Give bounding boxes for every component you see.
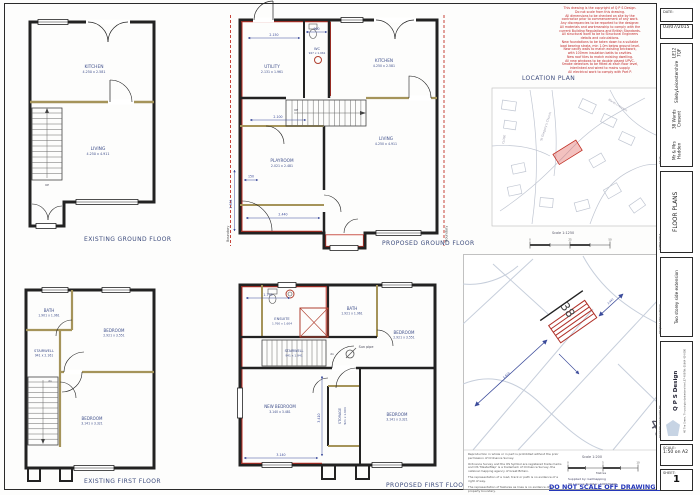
- client-line: Mr & Mrs Hadden: [671, 135, 682, 166]
- stair-direction-label: dn: [48, 379, 52, 383]
- location-plan-map: St Gregory's Church Wards Crescent CLOSE: [490, 86, 660, 228]
- door-arcs: [313, 330, 393, 393]
- producer-address: 40 The Green, ThrussingtonLeicestershire…: [679, 342, 691, 440]
- room-dims: 2.921 x 3.551: [393, 336, 415, 340]
- disclaimer-paragraph: Reproduction in whole or in part is proh…: [468, 453, 562, 460]
- room-dims: 947 x 1.961: [309, 51, 326, 55]
- room-label: NEW BEDROOM: [264, 404, 296, 409]
- sheet-title-box-label: SHEET TITLE: [659, 234, 662, 250]
- scale-tick: 0: [529, 238, 531, 242]
- sheet-number-box: SHEET: 1: [660, 469, 693, 491]
- room-label: KITCHEN: [375, 58, 393, 63]
- window-symbols: [330, 18, 421, 251]
- date-label-box: DATE:: [660, 8, 693, 22]
- porch-doors: [32, 204, 62, 220]
- sheet-number: 1: [661, 475, 692, 485]
- location-scale-label: Scale 1:1250: [552, 231, 574, 235]
- french-door: [86, 20, 130, 42]
- room-dims: 2.131 x 1.961: [261, 70, 283, 74]
- client-address: Mr & Mrs Hadden38 Wards CresentSilebyLei…: [661, 44, 692, 166]
- window-symbols: [238, 283, 413, 468]
- dim-text: 3.410: [317, 413, 321, 422]
- room-dims: 3.140 x 3.481: [269, 410, 291, 414]
- new-wall-red-lines: [241, 22, 363, 247]
- existing-first-floor-plan: BATH 1.901 x 1.961 BEDROOM 2.921 x 3.551…: [14, 282, 174, 490]
- room-dims: 3.141 x 3.321: [81, 422, 103, 426]
- caption-existing-ground: EXISTING GROUND FLOOR: [84, 236, 172, 243]
- scale-tick: 25: [568, 238, 572, 242]
- new-wall-red-lines: [241, 287, 328, 463]
- room-dims: 4.250 x 2.581: [83, 70, 106, 74]
- dim-text: 2.440: [278, 213, 287, 217]
- stair-direction-label: dn: [330, 352, 334, 356]
- dim-text: 900: [313, 27, 319, 31]
- metres-label: Metres: [596, 471, 606, 475]
- dim-text: 2.150: [269, 33, 278, 37]
- date-label: DATE:: [661, 9, 692, 14]
- room-dims: 941 x 1.941: [285, 354, 303, 358]
- scale-box: SCALE: 1:50 on A2: [660, 444, 693, 466]
- proposed-first-floor-plan: 1.770 3.410 3.140 ENSUITE 1.760 x 1.604 …: [232, 278, 447, 490]
- room-label: UTILITY: [264, 64, 280, 69]
- room-dims: 941 x 2.161: [35, 354, 54, 358]
- producer-line: Leicestershire LE7 4UB: [684, 372, 687, 399]
- staircase: [28, 377, 58, 445]
- room-label: BATH: [347, 306, 358, 311]
- producer-box: Q P S Design 40 The Green, ThrussingtonL…: [660, 341, 693, 441]
- room-dims: 1.760 x 1.604: [272, 322, 292, 326]
- supplied-by-label: Supplied by: Getmapping: [568, 477, 606, 481]
- room-dims: 2.021 x 2.481: [271, 164, 293, 168]
- room-label: PLAYROOM: [270, 158, 294, 163]
- disclaimer-paragraph: The representation of a road, track or p…: [468, 476, 562, 483]
- boundary-label: Boundary: [226, 226, 230, 242]
- dim-text: 1.804: [229, 199, 233, 208]
- scale-tick: 0: [567, 461, 569, 465]
- proposed-ground-floor-plan: Boundary Boundary 2.150 900 2.100 150 2.…: [226, 0, 454, 252]
- producer-line: 40 The Green, Thrussington: [684, 400, 687, 433]
- existing-ground-floor-plan: UP KITCHEN 4.250 x 2.581 LIVING 4.250 x …: [16, 10, 168, 238]
- os-disclaimer-notes: Reproduction in whole or in part is proh…: [468, 453, 562, 495]
- sheet-title: FLOOR PLANS: [661, 172, 692, 252]
- dimension-lines: [235, 32, 328, 231]
- room-label: STAIRWELL: [34, 349, 54, 353]
- room-label: STORAGE: [338, 408, 342, 424]
- project-description: Two storey side extension: [661, 258, 692, 336]
- room-dims: 3.141 x 3.321: [386, 418, 408, 422]
- stair-direction-label: UP: [45, 183, 49, 187]
- dim-text: 2.100: [273, 115, 282, 119]
- chimney-stubs: [28, 468, 72, 481]
- location-plan-title: LOCATION PLAN: [522, 75, 575, 82]
- client-line: LE12 7QF: [671, 44, 682, 61]
- room-label: BATH: [44, 308, 55, 313]
- site-scale-label: Scale 1:200: [582, 455, 602, 459]
- project-description-box: Two storey side extension PROJECT DESCRI…: [660, 257, 693, 337]
- date-value-box: 03/07/2015: [660, 24, 693, 39]
- client-box-label: Client: [659, 156, 662, 164]
- client-line: Leicestershire: [674, 61, 679, 90]
- staircase: [286, 100, 366, 126]
- do-not-scale-warning: DO NOT SCALE OFF DRAWINGS.: [549, 483, 663, 491]
- caption-existing-first: EXISTING FIRST FLOOR: [84, 478, 161, 485]
- dim-text: 1.770: [263, 293, 272, 297]
- location-scale-bar: 0 25 50: [528, 238, 614, 250]
- disclaimer-paragraph: The representation of features as lines …: [468, 486, 562, 493]
- boundary-lines: Boundary Boundary: [226, 15, 449, 246]
- new-entrance-door: [253, 1, 274, 22]
- room-label: BEDROOM: [104, 328, 125, 333]
- room-dims: 1.901 x 1.961: [38, 314, 60, 318]
- date-value: 03/07/2015: [661, 25, 692, 31]
- scale-value: 1:50 on A2: [661, 450, 692, 456]
- stair-direction-label: UP: [294, 108, 298, 112]
- room-label: LIVING: [379, 136, 393, 141]
- room-label: BEDROOM: [394, 330, 415, 335]
- scale-tick: 10: [636, 461, 640, 465]
- internal-walls: [240, 285, 435, 465]
- dim-text: 3.140: [276, 453, 285, 457]
- project-box-label: PROJECT DESCRIPTION: [659, 304, 662, 334]
- room-dims: 4.250 x 4.911: [87, 152, 110, 156]
- sheet-title-box: FLOOR PLANS SHEET TITLE: [660, 171, 693, 253]
- caption-proposed-first: PROPOSED FIRST FLOOR: [386, 482, 468, 489]
- sun-pipe-label: Sun pipe: [359, 345, 374, 349]
- chimney-stubs: [322, 465, 369, 479]
- room-label: BEDROOM: [82, 416, 103, 421]
- room-label: STAIRWELL: [285, 349, 304, 353]
- sun-pipe-symbol: [346, 348, 356, 358]
- room-dims: 4.250 x 4.911: [375, 142, 397, 146]
- general-notes: This drawing is the copyright of Q P S D…: [546, 7, 654, 75]
- staircase: [32, 108, 62, 180]
- scale-tick: 5: [602, 461, 604, 465]
- door-arcs: [242, 126, 358, 233]
- producer-line: Tel: 01664 424 000: [684, 349, 687, 372]
- room-dims: 4.250 x 2.581: [373, 64, 395, 68]
- room-dims: 921 x 1.604: [343, 407, 347, 425]
- dim-text: 150: [248, 175, 254, 179]
- title-block: DATE: 03/07/2015 Mr & Mrs Hadden38 Wards…: [656, 3, 696, 490]
- room-label: BEDROOM: [387, 412, 408, 417]
- producer-box-label: DRAWING PRODUCED BY:: [659, 405, 662, 438]
- drawing-sheet: UP KITCHEN 4.250 x 2.581 LIVING 4.250 x …: [0, 0, 700, 495]
- internal-wall: [30, 80, 154, 105]
- client-line: Sileby: [674, 90, 679, 103]
- disclaimer-paragraph: Ordnance Survey and the OS Symbol are re…: [468, 463, 562, 474]
- shower-enclosure: [300, 308, 328, 337]
- french-door: [374, 18, 416, 39]
- room-dims: 2.921 x 3.551: [103, 334, 125, 338]
- client-box: Mr & Mrs Hadden38 Wards CresentSilebyLei…: [660, 43, 693, 167]
- caption-proposed-ground: PROPOSED GROUND FLOOR: [382, 240, 475, 247]
- client-line: 38 Wards Cresent: [671, 103, 682, 135]
- room-label: ENSUITE: [274, 317, 290, 321]
- scale-tick: 50: [608, 238, 612, 242]
- room-dims: 1.921 x 1.961: [341, 312, 363, 316]
